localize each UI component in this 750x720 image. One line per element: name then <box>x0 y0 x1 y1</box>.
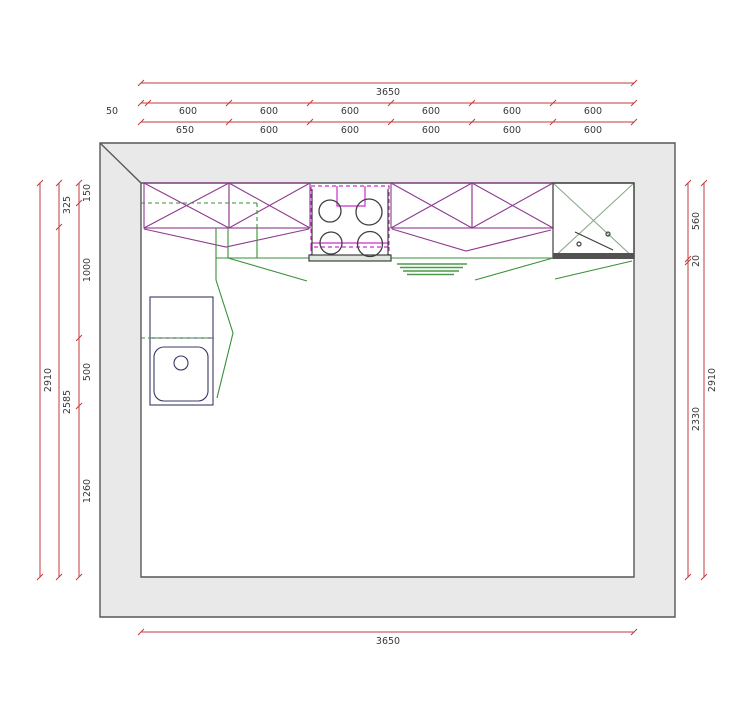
corner-cabinet-edges <box>216 228 257 280</box>
hood-chimney <box>337 186 365 206</box>
hatch-lines <box>397 264 467 275</box>
dim-label: 1000 <box>82 258 93 282</box>
vent-hatch <box>397 264 467 275</box>
dim-label: 600 <box>260 125 278 136</box>
hob-front-bar <box>309 255 391 261</box>
dim-label: 600 <box>422 125 440 136</box>
corner-cabinet-dashed <box>141 203 257 338</box>
dim-label: 500 <box>82 363 93 381</box>
wall-cabinets <box>144 183 553 251</box>
dim-label: 150 <box>82 184 93 202</box>
dim-label: 600 <box>260 106 278 117</box>
dim-label: 600 <box>584 106 602 117</box>
sink-drain-icon <box>174 356 188 370</box>
base-door-swing-2 <box>475 258 553 280</box>
dim-label: 600 <box>422 106 440 117</box>
hob-burners <box>319 199 383 257</box>
dim-label: 20 <box>691 255 702 267</box>
burner-icon <box>319 200 341 222</box>
kitchen-floor-plan: 3650 50 600 600 600 600 600 600 650 600 … <box>0 0 750 720</box>
burner-icon <box>356 199 382 225</box>
tall-cabinet-front-bar <box>553 253 634 259</box>
dim-label: 3650 <box>376 87 400 98</box>
dim-label: 325 <box>62 196 73 214</box>
tall-cabinet-x <box>553 183 634 258</box>
dim-label: 2330 <box>691 407 702 431</box>
dim-label: 2910 <box>43 368 54 392</box>
tall-cabinet-handle-icon <box>575 232 613 250</box>
wall-cabinet-2 <box>229 183 310 228</box>
dim-label: 2910 <box>707 368 718 392</box>
cabinet-door-swing-left <box>144 229 309 247</box>
wall-cabinet-1 <box>144 183 229 228</box>
dim-label: 600 <box>341 106 359 117</box>
hood-outline <box>311 186 389 247</box>
dim-label: 600 <box>341 125 359 136</box>
base-door-swing-3 <box>555 261 632 279</box>
burner-icon <box>358 232 383 257</box>
sink-door-swing <box>216 280 233 398</box>
dim-label: 50 <box>106 106 118 117</box>
dim-label: 1260 <box>82 479 93 503</box>
dim-label: 600 <box>503 106 521 117</box>
dim-label: 650 <box>176 125 194 136</box>
dim-label: 3650 <box>376 636 400 647</box>
sink-unit <box>150 297 213 405</box>
cabinet-door-swing-right <box>392 229 551 251</box>
plan-canvas: 3650 50 600 600 600 600 600 600 650 600 … <box>0 0 750 720</box>
wall-cabinet-4 <box>391 183 472 228</box>
dim-label: 2585 <box>62 390 73 414</box>
sink-counter <box>150 297 213 405</box>
dim-label: 600 <box>503 125 521 136</box>
dim-label: 600 <box>584 125 602 136</box>
base-door-swing-1 <box>228 258 307 281</box>
dim-label: 560 <box>691 212 702 230</box>
dim-label: 600 <box>179 106 197 117</box>
wall-cabinet-5 <box>472 183 553 228</box>
sink-basin <box>154 347 208 401</box>
